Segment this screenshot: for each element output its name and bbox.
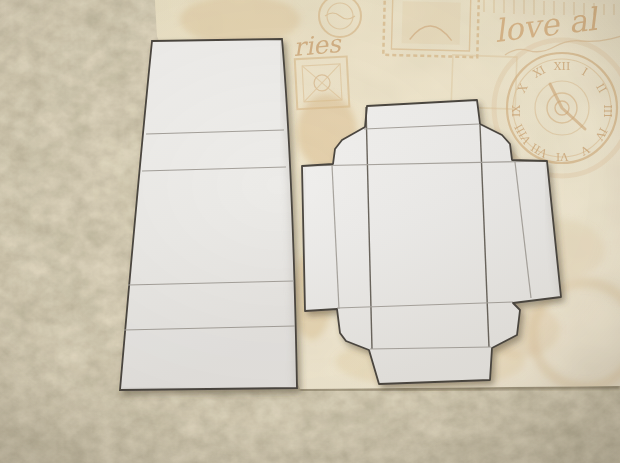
scene-svg: ries (0, 0, 620, 463)
photo-craft-scene: ries (0, 0, 620, 463)
photo-vignette (0, 0, 620, 463)
